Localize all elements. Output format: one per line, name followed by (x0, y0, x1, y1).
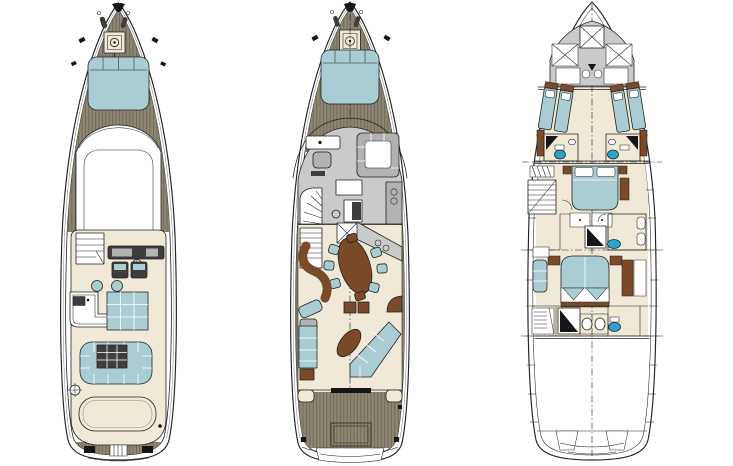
flybridge-stairs (76, 233, 104, 264)
salon-sofa-port (299, 326, 317, 368)
yacht-deck-plans (0, 0, 733, 466)
toilet (609, 323, 621, 332)
stairs-lower (528, 166, 556, 214)
sink (608, 240, 621, 249)
lower-deck-plan (521, 2, 663, 460)
u-sofa (80, 342, 152, 384)
crew-area (550, 21, 634, 86)
wardrobe (622, 260, 633, 296)
wardrobe (620, 178, 629, 200)
toilet (608, 150, 619, 159)
bar-stool (92, 281, 103, 292)
wardrobe (640, 130, 647, 156)
dryer (594, 70, 602, 78)
main-deck-plan (286, 2, 414, 463)
spiral-staircase (300, 188, 322, 224)
washer (582, 70, 590, 78)
bow-sunpad (88, 57, 149, 110)
flybridge-table (97, 345, 127, 368)
sink (582, 318, 592, 330)
end-table (300, 369, 314, 380)
sink (595, 318, 605, 330)
nightstand (619, 166, 627, 174)
toilet (555, 150, 566, 159)
wardrobe (537, 130, 544, 156)
crew-bunk (604, 68, 628, 84)
deck-fitting (158, 424, 162, 428)
bow-sunpad (321, 50, 379, 104)
flybridge-plan (61, 3, 177, 461)
bar-sink (73, 297, 85, 306)
sunbed-grid (107, 292, 148, 330)
nightstand (548, 256, 560, 265)
hardtop (76, 125, 161, 232)
helm-seat (313, 152, 331, 168)
master-sofa (533, 260, 547, 292)
aft-door-sill (331, 388, 371, 393)
nightstand (610, 256, 622, 265)
deck-plan-drawing (0, 0, 733, 466)
bar-stool (112, 281, 123, 292)
crew-bunk (556, 68, 580, 84)
nightstand (563, 166, 571, 174)
aft-sunpad (79, 397, 156, 431)
pilothouse-settee (357, 133, 399, 177)
